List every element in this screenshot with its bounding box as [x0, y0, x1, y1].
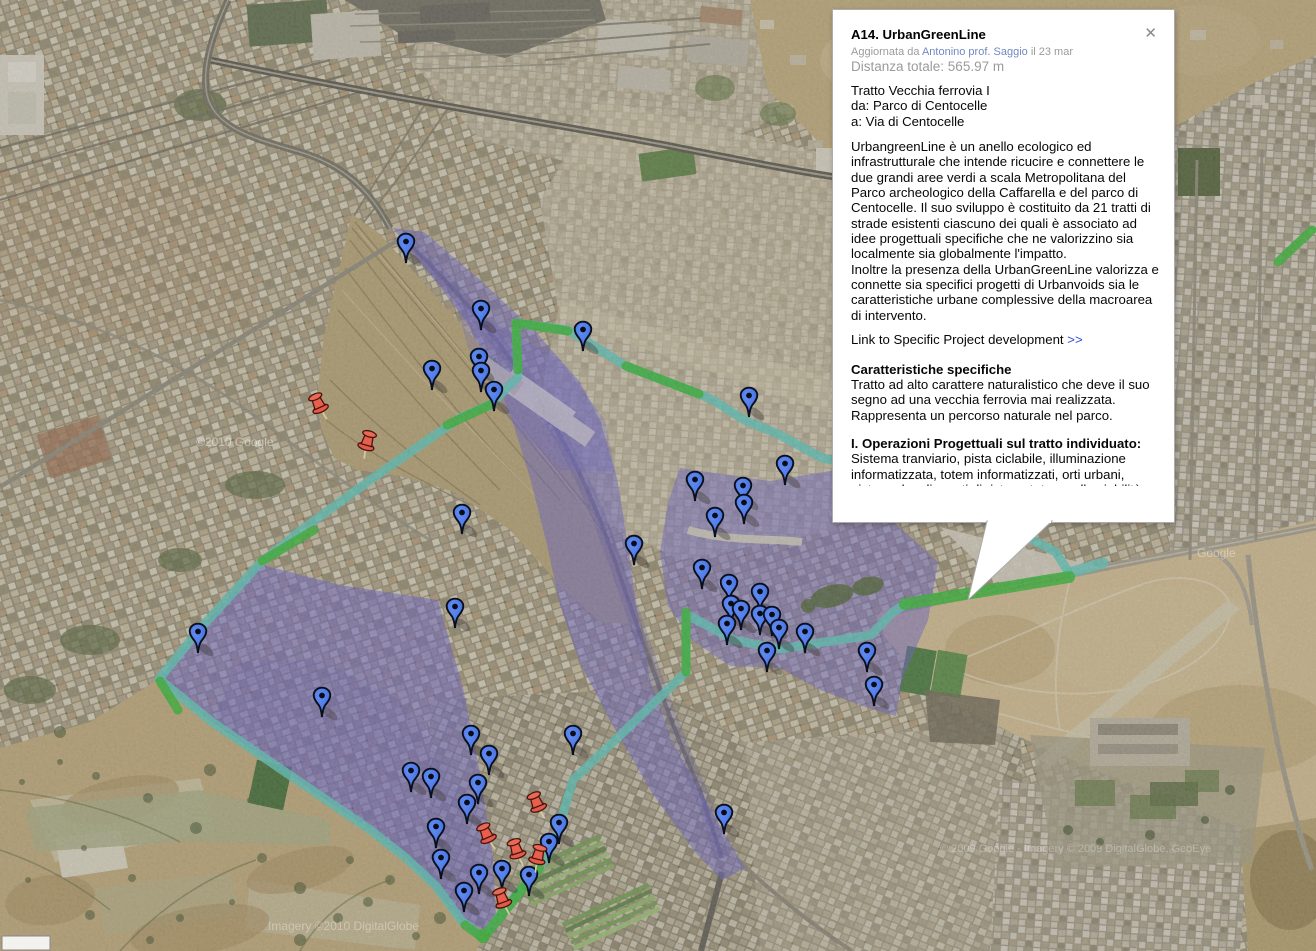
svg-text:©2010 Google: ©2010 Google	[196, 435, 274, 449]
svg-text:Google: Google	[1197, 546, 1236, 560]
svg-text:Imagery ©2010 DigitalGlobe: Imagery ©2010 DigitalGlobe	[268, 919, 419, 933]
svg-text:© 2009 Google - Imagery © 2009: © 2009 Google - Imagery © 2009 DigitalGl…	[940, 843, 1211, 855]
